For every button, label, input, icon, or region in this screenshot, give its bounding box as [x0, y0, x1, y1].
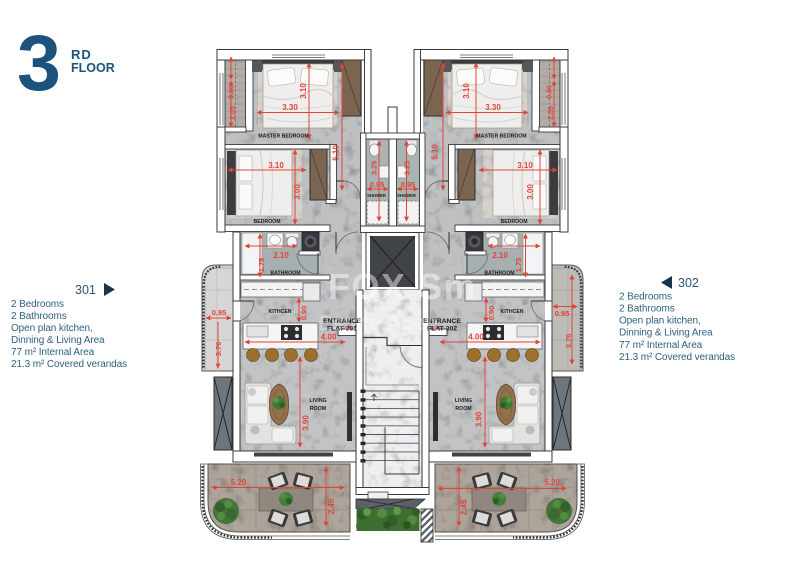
svg-text:0.80: 0.80 [229, 85, 236, 99]
svg-text:SHOWER: SHOWER [397, 193, 416, 198]
svg-text:LIVING: LIVING [309, 398, 326, 404]
svg-text:Dinning & Living Area: Dinning & Living Area [619, 328, 713, 339]
svg-text:0.90: 0.90 [300, 306, 309, 321]
svg-text:0.95: 0.95 [212, 308, 227, 317]
svg-text:77 m² Internal Area: 77 m² Internal Area [619, 340, 703, 351]
svg-text:1.75: 1.75 [257, 258, 266, 273]
svg-text:3.25: 3.25 [370, 161, 379, 176]
svg-text:0.95: 0.95 [555, 309, 570, 318]
svg-text:4.00: 4.00 [468, 333, 484, 342]
svg-text:Dinning & Living Area: Dinning & Living Area [11, 335, 105, 346]
svg-text:3.90: 3.90 [475, 411, 484, 427]
svg-text:BEDROOM: BEDROOM [253, 219, 280, 225]
svg-text:KITHCEN: KITHCEN [268, 309, 291, 315]
svg-text:Open plan kitchen,: Open plan kitchen, [619, 316, 701, 327]
svg-text:0.80: 0.80 [547, 85, 554, 99]
svg-text:3.10: 3.10 [268, 161, 284, 170]
svg-text:0.95: 0.95 [370, 180, 385, 189]
svg-text:2 Bedrooms: 2 Bedrooms [11, 299, 64, 310]
svg-text:3.30: 3.30 [485, 103, 501, 112]
svg-text:2 Bedrooms: 2 Bedrooms [619, 292, 672, 303]
svg-text:FOX Sm: FOX Sm [328, 266, 477, 307]
svg-text:2.10: 2.10 [273, 251, 289, 260]
svg-text:LIVING: LIVING [455, 398, 472, 404]
svg-text:21.3 m² Covered verandas: 21.3 m² Covered verandas [11, 359, 127, 370]
svg-text:21.3 m² Covered verandas: 21.3 m² Covered verandas [619, 352, 735, 363]
svg-text:KITHCEN: KITHCEN [500, 309, 523, 315]
svg-text:2.10: 2.10 [492, 251, 508, 260]
svg-text:ROOM: ROOM [455, 406, 471, 412]
svg-text:5.20: 5.20 [544, 478, 560, 487]
svg-text:3.10: 3.10 [517, 161, 533, 170]
svg-text:2.45: 2.45 [460, 499, 469, 515]
svg-text:ROOM: ROOM [310, 406, 326, 412]
svg-text:0.90: 0.90 [487, 306, 496, 321]
svg-text:77 m² Internal Area: 77 m² Internal Area [11, 347, 95, 358]
svg-text:SHOWER: SHOWER [367, 193, 386, 198]
svg-text:5.10: 5.10 [332, 145, 341, 161]
svg-text:BATHROOM: BATHROOM [270, 271, 300, 277]
svg-text:3.00: 3.00 [526, 184, 535, 200]
svg-text:3.10: 3.10 [462, 83, 471, 99]
svg-text:5.10: 5.10 [431, 144, 440, 160]
svg-text:Estate Agen: Estate Agen [318, 312, 439, 335]
svg-text:2.45: 2.45 [327, 498, 336, 514]
svg-text:RD: RD [71, 47, 92, 62]
svg-text:2 Bathrooms: 2 Bathrooms [11, 311, 67, 322]
svg-text:3.10: 3.10 [299, 83, 308, 99]
svg-text:301: 301 [75, 283, 96, 297]
svg-text:BEDROOM: BEDROOM [500, 219, 527, 225]
svg-text:5.20: 5.20 [231, 478, 247, 487]
svg-text:3.00: 3.00 [293, 184, 302, 200]
svg-text:3.90: 3.90 [302, 415, 311, 431]
svg-text:Open plan kitchen,: Open plan kitchen, [11, 323, 93, 334]
svg-text:0.95: 0.95 [401, 180, 416, 189]
svg-text:1.75: 1.75 [514, 258, 523, 273]
svg-text:3.25: 3.25 [403, 161, 412, 176]
svg-text:MASTER BEDROOM: MASTER BEDROOM [476, 134, 526, 140]
svg-text:2 Bathrooms: 2 Bathrooms [619, 304, 675, 315]
svg-text:MASTER BEDROOM: MASTER BEDROOM [258, 134, 308, 140]
svg-text:302: 302 [678, 276, 699, 290]
svg-text:2.05: 2.05 [230, 106, 237, 120]
svg-text:3.30: 3.30 [282, 103, 298, 112]
svg-text:FLOOR: FLOOR [71, 61, 115, 75]
svg-text:BATHROOM: BATHROOM [484, 271, 514, 277]
svg-text:2.05: 2.05 [548, 106, 555, 120]
svg-text:3: 3 [17, 18, 61, 107]
